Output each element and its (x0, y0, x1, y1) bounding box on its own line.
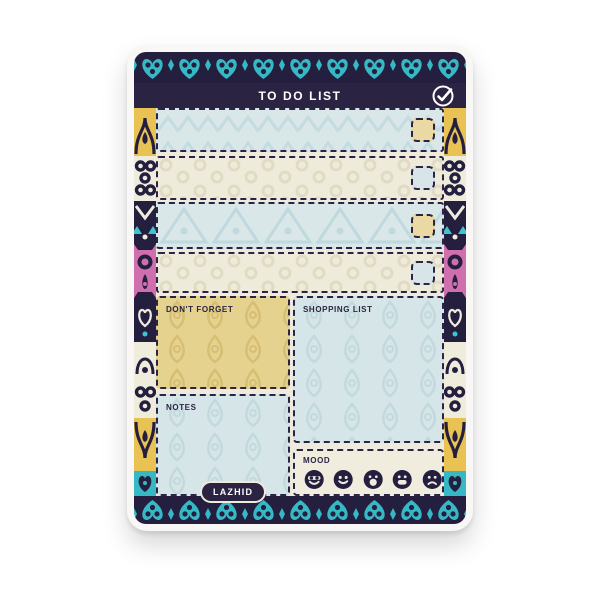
ornament-moth-icon (444, 201, 466, 244)
bottom-ornament-band (134, 496, 466, 524)
todo-checkbox[interactable] (411, 214, 435, 238)
grinning-face-icon[interactable] (392, 469, 412, 490)
todo-checkbox[interactable] (411, 261, 435, 285)
brand-badge: LAZHID (200, 481, 266, 503)
mood-section: MOOD (293, 449, 444, 496)
todo-checkbox[interactable] (411, 118, 435, 142)
mood-icon-row (295, 465, 442, 490)
notes-label: NOTES (158, 396, 288, 412)
notepad-sheet: TO DO LIST (134, 52, 466, 524)
shopping-list-section: SHOPPING LIST (293, 296, 444, 443)
top-ornament-band (134, 52, 466, 83)
dont-forget-label: DON'T FORGET (158, 298, 288, 314)
ornament-arch-icon (444, 418, 466, 471)
header-bar: TO DO LIST (134, 83, 466, 108)
ornament-rings-icon (134, 156, 156, 201)
ornament-rings-icon (444, 381, 466, 418)
todo-row (156, 202, 444, 249)
ornament-heart-icon (134, 471, 156, 496)
shopping-list-label: SHOPPING LIST (295, 298, 442, 314)
todo-notepad-card: TO DO LIST (127, 45, 473, 531)
ornament-arch-icon (444, 108, 466, 156)
ornament-arch-icon (134, 418, 156, 471)
dont-forget-section: DON'T FORGET (156, 296, 290, 389)
ornament-rings-icon (134, 381, 156, 418)
ornament-moth-icon (134, 201, 156, 244)
ornament-heart-outline-icon (444, 298, 466, 342)
todo-row (156, 108, 444, 152)
todo-row (156, 156, 444, 200)
ornament-crescent-icon (444, 342, 466, 381)
ornament-heart-icon (444, 471, 466, 496)
smile-face-icon[interactable] (333, 469, 353, 490)
ornament-rings-icon (444, 156, 466, 201)
sad-face-icon[interactable] (422, 469, 442, 490)
surprised-face-icon[interactable] (363, 469, 383, 490)
right-ornament-strip (444, 108, 466, 496)
left-ornament-strip (134, 108, 156, 496)
todo-checkbox[interactable] (411, 166, 435, 190)
ornament-crescent-icon (134, 342, 156, 381)
ornament-heart-outline-icon (134, 298, 156, 342)
ornament-pink-rings-icon (444, 244, 466, 298)
ornament-arch-icon (134, 108, 156, 156)
mood-label: MOOD (295, 451, 442, 465)
todo-row (156, 252, 444, 293)
cool-face-icon[interactable] (304, 469, 324, 490)
product-photo: TO DO LIST (0, 0, 600, 600)
ornament-pink-rings-icon (134, 244, 156, 298)
page-title: TO DO LIST (258, 89, 341, 103)
